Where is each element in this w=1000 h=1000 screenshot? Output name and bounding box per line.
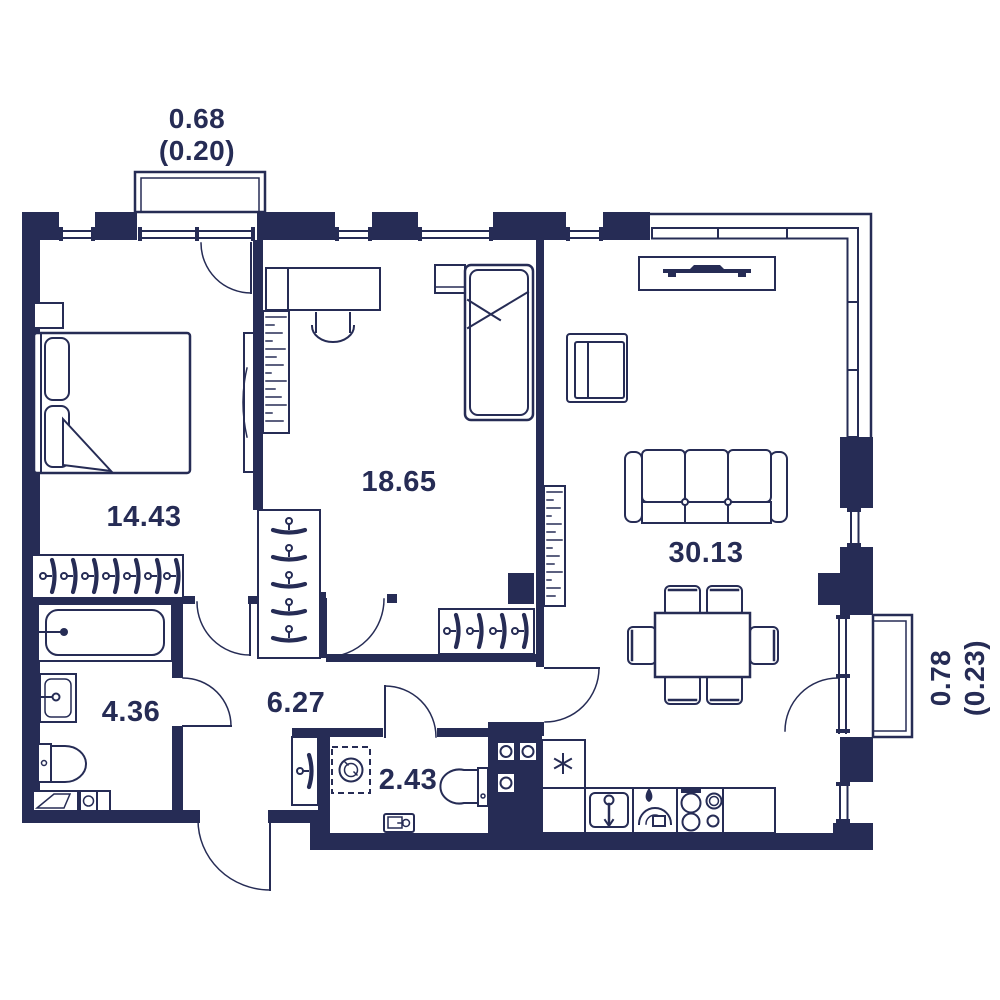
bathtub <box>38 604 172 661</box>
shelving-left <box>263 311 289 433</box>
wc-toilet <box>440 768 488 806</box>
desk-chair <box>312 313 354 342</box>
label-balcony-top-reduced: (0.20) <box>159 135 235 166</box>
washing-machine <box>332 747 370 793</box>
balcony-door-right <box>836 615 850 733</box>
label-room2-area: 18.65 <box>361 466 436 498</box>
armchair <box>567 334 627 402</box>
shelving-right <box>544 486 565 606</box>
hallway-nook <box>292 737 318 805</box>
laundry-shelf <box>33 791 110 811</box>
label-wc-area: 2.43 <box>379 764 437 796</box>
window-balcony-door-top <box>138 227 255 241</box>
door-balcony-right <box>785 678 838 731</box>
room2-wardrobe <box>439 609 534 654</box>
nightstand <box>34 303 63 328</box>
corner-glazing <box>650 214 871 440</box>
wc-basin <box>384 814 414 832</box>
desk <box>266 268 380 310</box>
window-living-right <box>847 508 861 547</box>
balcony-top <box>135 172 265 212</box>
tv-stand <box>639 257 775 290</box>
hallway-closet <box>258 510 320 658</box>
floor-plan-page: 14.43 18.65 30.13 4.36 6.27 2.43 0.68 (0… <box>0 0 1000 1000</box>
window-kitchen-right <box>836 782 850 823</box>
toilet <box>38 744 86 782</box>
living-furniture <box>544 257 787 704</box>
sofa <box>625 450 787 523</box>
window-living-small <box>566 227 603 241</box>
door-bathroom <box>183 678 231 726</box>
single-bed <box>465 265 533 420</box>
door-entrance <box>198 820 270 890</box>
label-balcony-right-reduced: (0.23) <box>959 640 990 716</box>
window-bedroom <box>59 227 95 241</box>
door-room2 <box>326 599 384 657</box>
washbasin <box>38 674 76 722</box>
nightstand-2 <box>435 265 465 293</box>
door-wc <box>385 686 436 737</box>
label-living-area: 30.13 <box>668 537 743 569</box>
wardrobe-panel <box>243 333 254 472</box>
label-bedroom-area: 14.43 <box>106 501 181 533</box>
window-room2-a <box>335 227 372 241</box>
label-bathroom-area: 4.36 <box>102 696 160 728</box>
double-bed <box>34 333 190 473</box>
kitchen-sink <box>590 793 628 827</box>
label-hallway-area: 6.27 <box>267 687 325 719</box>
floor-plan: 14.43 18.65 30.13 4.36 6.27 2.43 0.68 (0… <box>0 0 1000 1000</box>
door-bedroom <box>197 602 250 655</box>
balcony-right <box>873 615 912 737</box>
door-balcony-top <box>201 243 251 293</box>
label-balcony-right-area: 0.78 <box>925 650 956 707</box>
window-room2-b <box>418 227 493 241</box>
dining-set <box>628 586 778 704</box>
kitchen <box>542 740 775 833</box>
door-living <box>545 668 599 722</box>
bedroom-furniture <box>32 303 254 598</box>
bedroom-closet <box>32 555 183 598</box>
label-balcony-top-area: 0.68 <box>169 103 226 134</box>
fridge <box>542 740 585 788</box>
